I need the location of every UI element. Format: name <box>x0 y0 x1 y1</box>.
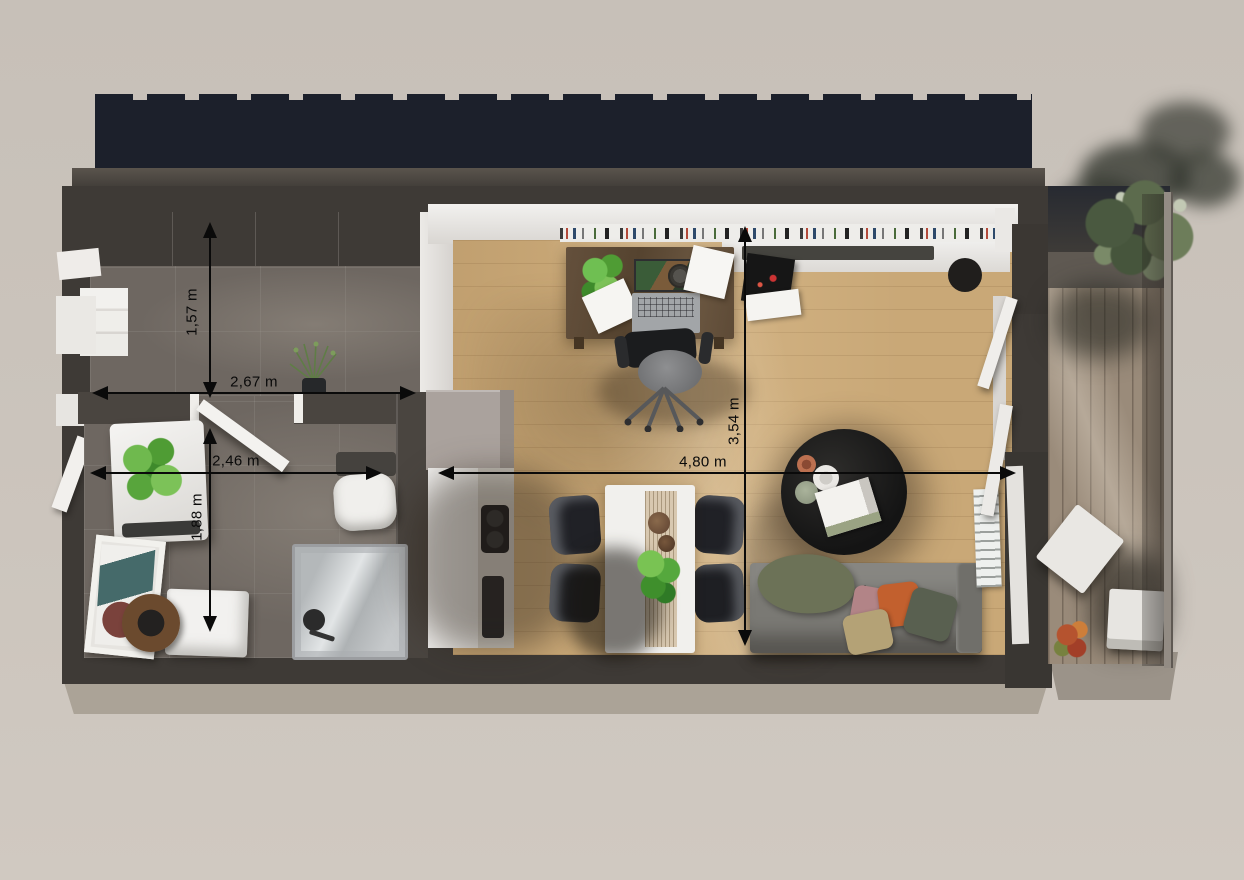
dining-chair <box>548 494 602 555</box>
dim-1-88-line <box>209 432 211 618</box>
dim-1-88-label: 1,88 m <box>190 493 205 541</box>
dim-1-57-line <box>209 226 211 394</box>
dining-chair-3 <box>692 494 746 555</box>
building-shadow-teeth <box>95 94 1032 101</box>
dim-2-67-arrow-right <box>400 386 416 400</box>
dim-2-46-arrow-right <box>366 466 382 480</box>
table-vase <box>648 512 670 534</box>
dim-2-46-arrow-left <box>90 466 106 480</box>
entry-wall-stub-2 <box>56 296 96 354</box>
apartment-plinth <box>64 682 1048 714</box>
bathroom-wall-right-segment <box>294 392 398 424</box>
shower <box>292 544 408 660</box>
dim-4-80-label: 4,80 m <box>679 455 727 470</box>
basket <box>122 594 180 652</box>
hallway-closet <box>90 212 422 268</box>
dim-1-88-arrow-down <box>203 616 217 632</box>
dim-4-80-line <box>442 472 1004 474</box>
washer-plant <box>116 432 188 510</box>
dim-2-46-label: 2,46 m <box>212 454 260 469</box>
dining-shadow-left <box>408 470 578 650</box>
bathroom-door-jamb-2 <box>294 393 303 423</box>
dim-2-67-label: 2,67 m <box>230 375 278 390</box>
dim-3-54-label: 3,54 m <box>727 397 742 445</box>
balcony-railing-frame <box>1164 192 1173 668</box>
toilet-bowl <box>332 472 398 532</box>
dim-2-46-line <box>94 472 376 474</box>
dim-3-54-arrow-up <box>738 226 752 242</box>
desk-leg <box>574 337 584 349</box>
dim-2-67-arrow-left <box>92 386 108 400</box>
table-plant <box>628 544 688 610</box>
dim-1-57-arrow-up <box>203 222 217 238</box>
balcony-red-plant <box>1048 614 1096 666</box>
floor-plan-render: 1,57 m 2,67 m 2,46 m 1,88 m 3,54 m 4,80 … <box>0 0 1244 880</box>
dining-chair-4 <box>693 563 746 624</box>
wall-top-face <box>72 168 1045 188</box>
dim-3-54-line <box>744 230 746 632</box>
shower-drain-fixture <box>303 609 325 631</box>
entry-wall-stub <box>57 248 102 280</box>
dim-1-57-label: 1,57 m <box>185 288 200 336</box>
dim-4-80-arrow-right <box>1000 466 1016 480</box>
office-chair-base <box>622 376 706 432</box>
balcony-wall-stub-top <box>1012 224 1050 314</box>
kitchen-upper-cabinet <box>426 390 514 470</box>
dim-4-80-arrow-left <box>438 466 454 480</box>
dim-3-54-arrow-down <box>738 630 752 646</box>
balcony-bush <box>1068 162 1208 298</box>
shower-handle <box>309 629 335 642</box>
laptop-keyboard <box>632 293 700 333</box>
desk-leg-2 <box>714 337 724 349</box>
dim-1-57-arrow-down <box>203 382 217 398</box>
dim-1-88-arrow-up <box>203 428 217 444</box>
dim-2-67-line <box>96 392 408 394</box>
bookshelf <box>560 224 1008 242</box>
